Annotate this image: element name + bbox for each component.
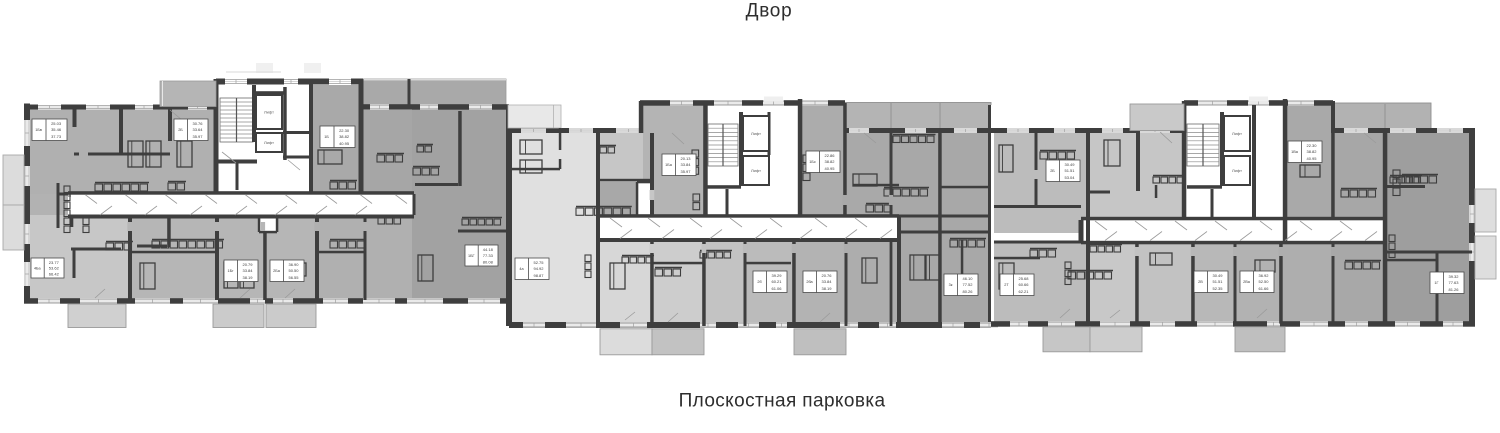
svg-text:80.08: 80.08 [483, 259, 494, 264]
svg-text:35.97: 35.97 [680, 169, 691, 174]
svg-text:1Г: 1Г [1434, 281, 1438, 285]
svg-text:2Б: 2Б [1050, 169, 1055, 173]
svg-text:50.50: 50.50 [288, 268, 299, 273]
svg-text:Лифт: Лифт [1232, 131, 1242, 136]
svg-text:36.90: 36.90 [288, 262, 299, 267]
svg-text:56.55: 56.55 [288, 275, 299, 280]
svg-text:1Бв: 1Бв [35, 128, 42, 132]
svg-text:38.82: 38.82 [1306, 149, 1317, 154]
svg-text:20.76: 20.76 [821, 273, 832, 278]
svg-text:33.84: 33.84 [242, 268, 253, 273]
svg-text:40.95: 40.95 [339, 141, 350, 146]
svg-text:4Ба: 4Ба [34, 266, 42, 270]
svg-text:Двор: Двор [746, 1, 793, 22]
svg-text:2Б: 2Б [178, 128, 183, 132]
svg-text:1Ба: 1Ба [665, 163, 673, 167]
svg-text:1Бс: 1Бс [809, 160, 816, 164]
svg-text:98.87: 98.87 [533, 273, 544, 278]
svg-text:61.06: 61.06 [771, 286, 782, 291]
svg-text:53.04: 53.04 [1064, 175, 1075, 180]
svg-text:1Б: 1Б [324, 135, 329, 139]
svg-text:2Ба: 2Ба [273, 269, 281, 273]
svg-text:38.19: 38.19 [821, 286, 832, 291]
svg-text:38.82: 38.82 [339, 134, 350, 139]
svg-text:38.82: 38.82 [824, 159, 835, 164]
svg-text:35.46: 35.46 [51, 127, 62, 132]
svg-text:30.49: 30.49 [1064, 162, 1075, 167]
svg-text:Лифт: Лифт [264, 140, 274, 145]
svg-text:38.19: 38.19 [242, 275, 253, 280]
svg-text:2Ва: 2Ва [1243, 280, 1251, 284]
svg-text:33.84: 33.84 [821, 279, 832, 284]
svg-text:35.97: 35.97 [192, 134, 203, 139]
svg-text:20.13: 20.13 [680, 156, 691, 161]
svg-text:20.79: 20.79 [242, 262, 253, 267]
svg-text:33.64: 33.64 [192, 127, 203, 132]
svg-text:30.49: 30.49 [1212, 273, 1223, 278]
svg-text:52.75: 52.75 [533, 260, 544, 265]
svg-text:40.95: 40.95 [824, 166, 835, 171]
svg-text:94.92: 94.92 [533, 266, 544, 271]
svg-text:51.51: 51.51 [1212, 279, 1223, 284]
svg-text:77.52: 77.52 [962, 282, 973, 287]
svg-text:2Т: 2Т [1004, 283, 1009, 287]
svg-text:Лифт: Лифт [1232, 168, 1242, 173]
svg-text:Лифт: Лифт [751, 168, 761, 173]
svg-text:77.33: 77.33 [483, 253, 494, 258]
svg-text:25.03: 25.03 [51, 121, 62, 126]
svg-text:37.73: 37.73 [51, 134, 62, 139]
svg-text:Плоскостная парковка: Плоскостная парковка [679, 391, 886, 412]
svg-text:23.77: 23.77 [49, 260, 60, 265]
svg-text:33.84: 33.84 [680, 162, 691, 167]
svg-text:51.51: 51.51 [1064, 168, 1075, 173]
svg-text:30.76: 30.76 [192, 121, 203, 126]
svg-text:39.32: 39.32 [1448, 274, 1459, 279]
svg-text:39.29: 39.29 [771, 273, 782, 278]
svg-text:1БГ: 1БГ [468, 254, 475, 258]
svg-text:62.21: 62.21 [1018, 289, 1029, 294]
svg-text:60.21: 60.21 [771, 279, 782, 284]
svg-text:22.86: 22.86 [824, 153, 835, 158]
svg-text:52.35: 52.35 [1212, 286, 1223, 291]
svg-text:66.42: 66.42 [49, 271, 60, 276]
svg-text:1Бг: 1Бг [228, 269, 235, 273]
svg-text:61.66: 61.66 [1258, 286, 1269, 291]
svg-text:1Ва: 1Ва [1291, 150, 1299, 154]
svg-text:40.95: 40.95 [1306, 156, 1317, 161]
svg-text:3к: 3к [949, 283, 953, 287]
svg-text:53.62: 53.62 [49, 266, 60, 271]
svg-text:2В: 2В [1198, 280, 1203, 284]
svg-text:Лифт: Лифт [264, 110, 274, 115]
svg-text:44.18: 44.18 [483, 247, 494, 252]
svg-text:52.50: 52.50 [1258, 279, 1269, 284]
svg-text:25.68: 25.68 [1018, 276, 1029, 281]
svg-text:77.63: 77.63 [1448, 280, 1459, 285]
svg-text:80.26: 80.26 [962, 289, 973, 294]
svg-text:81.26: 81.26 [1448, 287, 1459, 292]
svg-text:36.92: 36.92 [1258, 273, 1269, 278]
svg-text:Лифт: Лифт [751, 131, 761, 136]
svg-text:2ба: 2ба [806, 280, 813, 284]
svg-text:46.10: 46.10 [962, 276, 973, 281]
svg-text:60.66: 60.66 [1018, 282, 1029, 287]
svg-text:22.30: 22.30 [339, 128, 350, 133]
svg-text:22.30: 22.30 [1306, 143, 1317, 148]
